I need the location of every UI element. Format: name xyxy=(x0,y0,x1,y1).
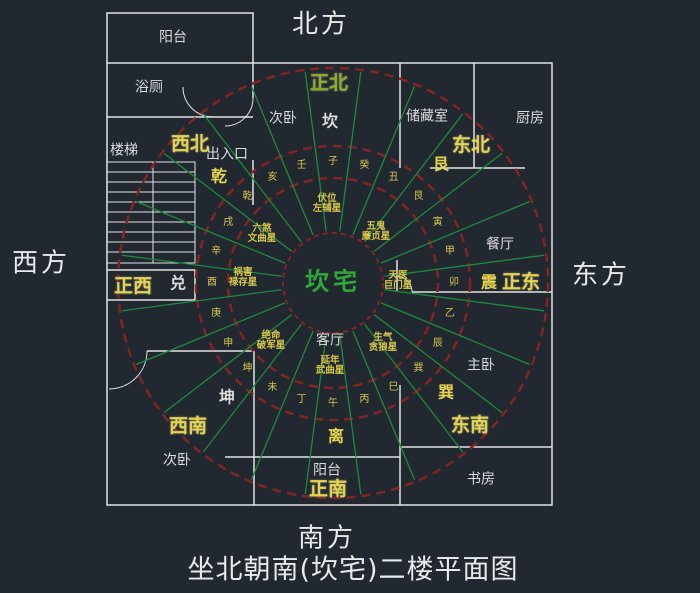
trigram-qian: 乾 xyxy=(211,169,227,186)
mountain-艮: 艮 xyxy=(414,192,424,203)
east-label: 东方 xyxy=(572,262,630,289)
star-jueming: 绝命破军星 xyxy=(257,331,286,351)
north-label: 北方 xyxy=(292,11,350,38)
trigram-kan: 坎 xyxy=(322,114,338,131)
room-label-living-room: 客厅 xyxy=(316,334,344,349)
mountain-甲: 甲 xyxy=(445,246,455,257)
direction-due-west: 正西 xyxy=(114,277,152,297)
mountain-丙: 丙 xyxy=(359,395,369,406)
trigram-zhen: 震 xyxy=(481,275,497,292)
room-label-balcony-nw: 阳台 xyxy=(159,31,187,46)
star-tianyi: 天医巨门星 xyxy=(384,271,413,291)
mountain-乙: 乙 xyxy=(445,309,455,320)
trigram-xun: 巽 xyxy=(438,385,454,402)
trigram-dui: 兑 xyxy=(170,276,186,293)
star-huohai: 祸害禄存星 xyxy=(229,268,258,288)
room-label-bedroom-sw: 次卧 xyxy=(163,454,191,469)
room-label-entrance: 出入口 xyxy=(206,148,248,163)
mountain-丁: 丁 xyxy=(297,395,307,406)
room-label-bathroom: 浴厕 xyxy=(135,81,163,96)
mountain-午: 午 xyxy=(328,399,338,410)
south-label: 南方 xyxy=(298,525,356,552)
star-shengqi: 生气贪狼星 xyxy=(369,333,398,353)
room-label-storage-room: 储藏室 xyxy=(406,110,448,125)
direction-due-south: 正南 xyxy=(309,480,347,500)
room-label-bedroom-north: 次卧 xyxy=(269,112,297,127)
mountain-戌: 戌 xyxy=(223,217,233,228)
mountain-子: 子 xyxy=(328,157,338,168)
mountain-乾: 乾 xyxy=(242,192,252,203)
mountain-癸: 癸 xyxy=(359,161,369,172)
mountain-亥: 亥 xyxy=(268,173,278,184)
trigram-gen: 艮 xyxy=(433,157,449,174)
star-yannian: 延年武曲星 xyxy=(316,356,345,376)
mountain-寅: 寅 xyxy=(433,217,443,228)
mountain-卯: 卯 xyxy=(449,278,459,289)
direction-due-north: 正北 xyxy=(310,74,348,94)
room-label-study: 书房 xyxy=(467,473,495,488)
room-label-balcony-south: 阳台 xyxy=(313,464,341,479)
mountain-丑: 丑 xyxy=(389,173,399,184)
mountain-辛: 辛 xyxy=(211,246,221,257)
labels-overlay: 坐北朝南(坎宅)二楼平面图 北方南方西方东方阳台浴厕楼梯出入口次卧储藏室厨房餐厅… xyxy=(0,0,700,593)
floor-plan-canvas: 坐北朝南(坎宅)二楼平面图 北方南方西方东方阳台浴厕楼梯出入口次卧储藏室厨房餐厅… xyxy=(0,0,700,593)
direction-southeast: 东南 xyxy=(451,416,489,436)
room-label-kitchen: 厨房 xyxy=(516,112,544,127)
mountain-酉: 酉 xyxy=(207,278,217,289)
mountain-巳: 巳 xyxy=(389,383,399,394)
mountain-庚: 庚 xyxy=(211,309,221,320)
room-label-stairs: 楼梯 xyxy=(110,144,138,159)
mountain-申: 申 xyxy=(223,338,233,349)
west-label: 西方 xyxy=(12,250,70,277)
star-liusha: 六煞文曲星 xyxy=(248,224,277,244)
direction-due-east: 正东 xyxy=(502,273,540,293)
direction-northeast: 东北 xyxy=(452,136,490,156)
mountain-巽: 巽 xyxy=(414,363,424,374)
direction-northwest: 西北 xyxy=(171,135,209,155)
room-label-master-bedroom: 主卧 xyxy=(467,359,495,374)
mountain-未: 未 xyxy=(268,383,278,394)
direction-southwest: 西南 xyxy=(169,417,207,437)
house-center-label: 坎宅 xyxy=(305,269,361,294)
star-fuwei: 伏位左辅星 xyxy=(313,194,342,214)
trigram-li: 离 xyxy=(328,429,344,446)
mountain-辰: 辰 xyxy=(433,338,443,349)
mountain-坤: 坤 xyxy=(242,363,252,374)
mountain-壬: 壬 xyxy=(297,161,307,172)
trigram-kun: 坤 xyxy=(219,390,235,407)
star-wugui: 五鬼廉贞星 xyxy=(362,222,391,242)
room-label-dining-room: 餐厅 xyxy=(486,238,514,253)
